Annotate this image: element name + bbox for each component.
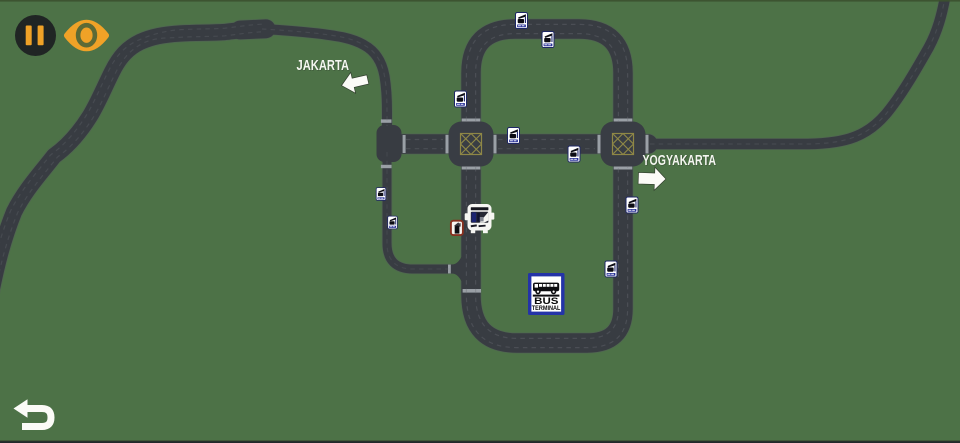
svg-text:TERMINAL: TERMINAL (532, 306, 561, 312)
svg-text:YOGYAKARTA: YOGYAKARTA (643, 153, 717, 169)
svg-text:BUS: BUS (534, 295, 558, 306)
svg-text:JAKARTA: JAKARTA (297, 58, 350, 74)
